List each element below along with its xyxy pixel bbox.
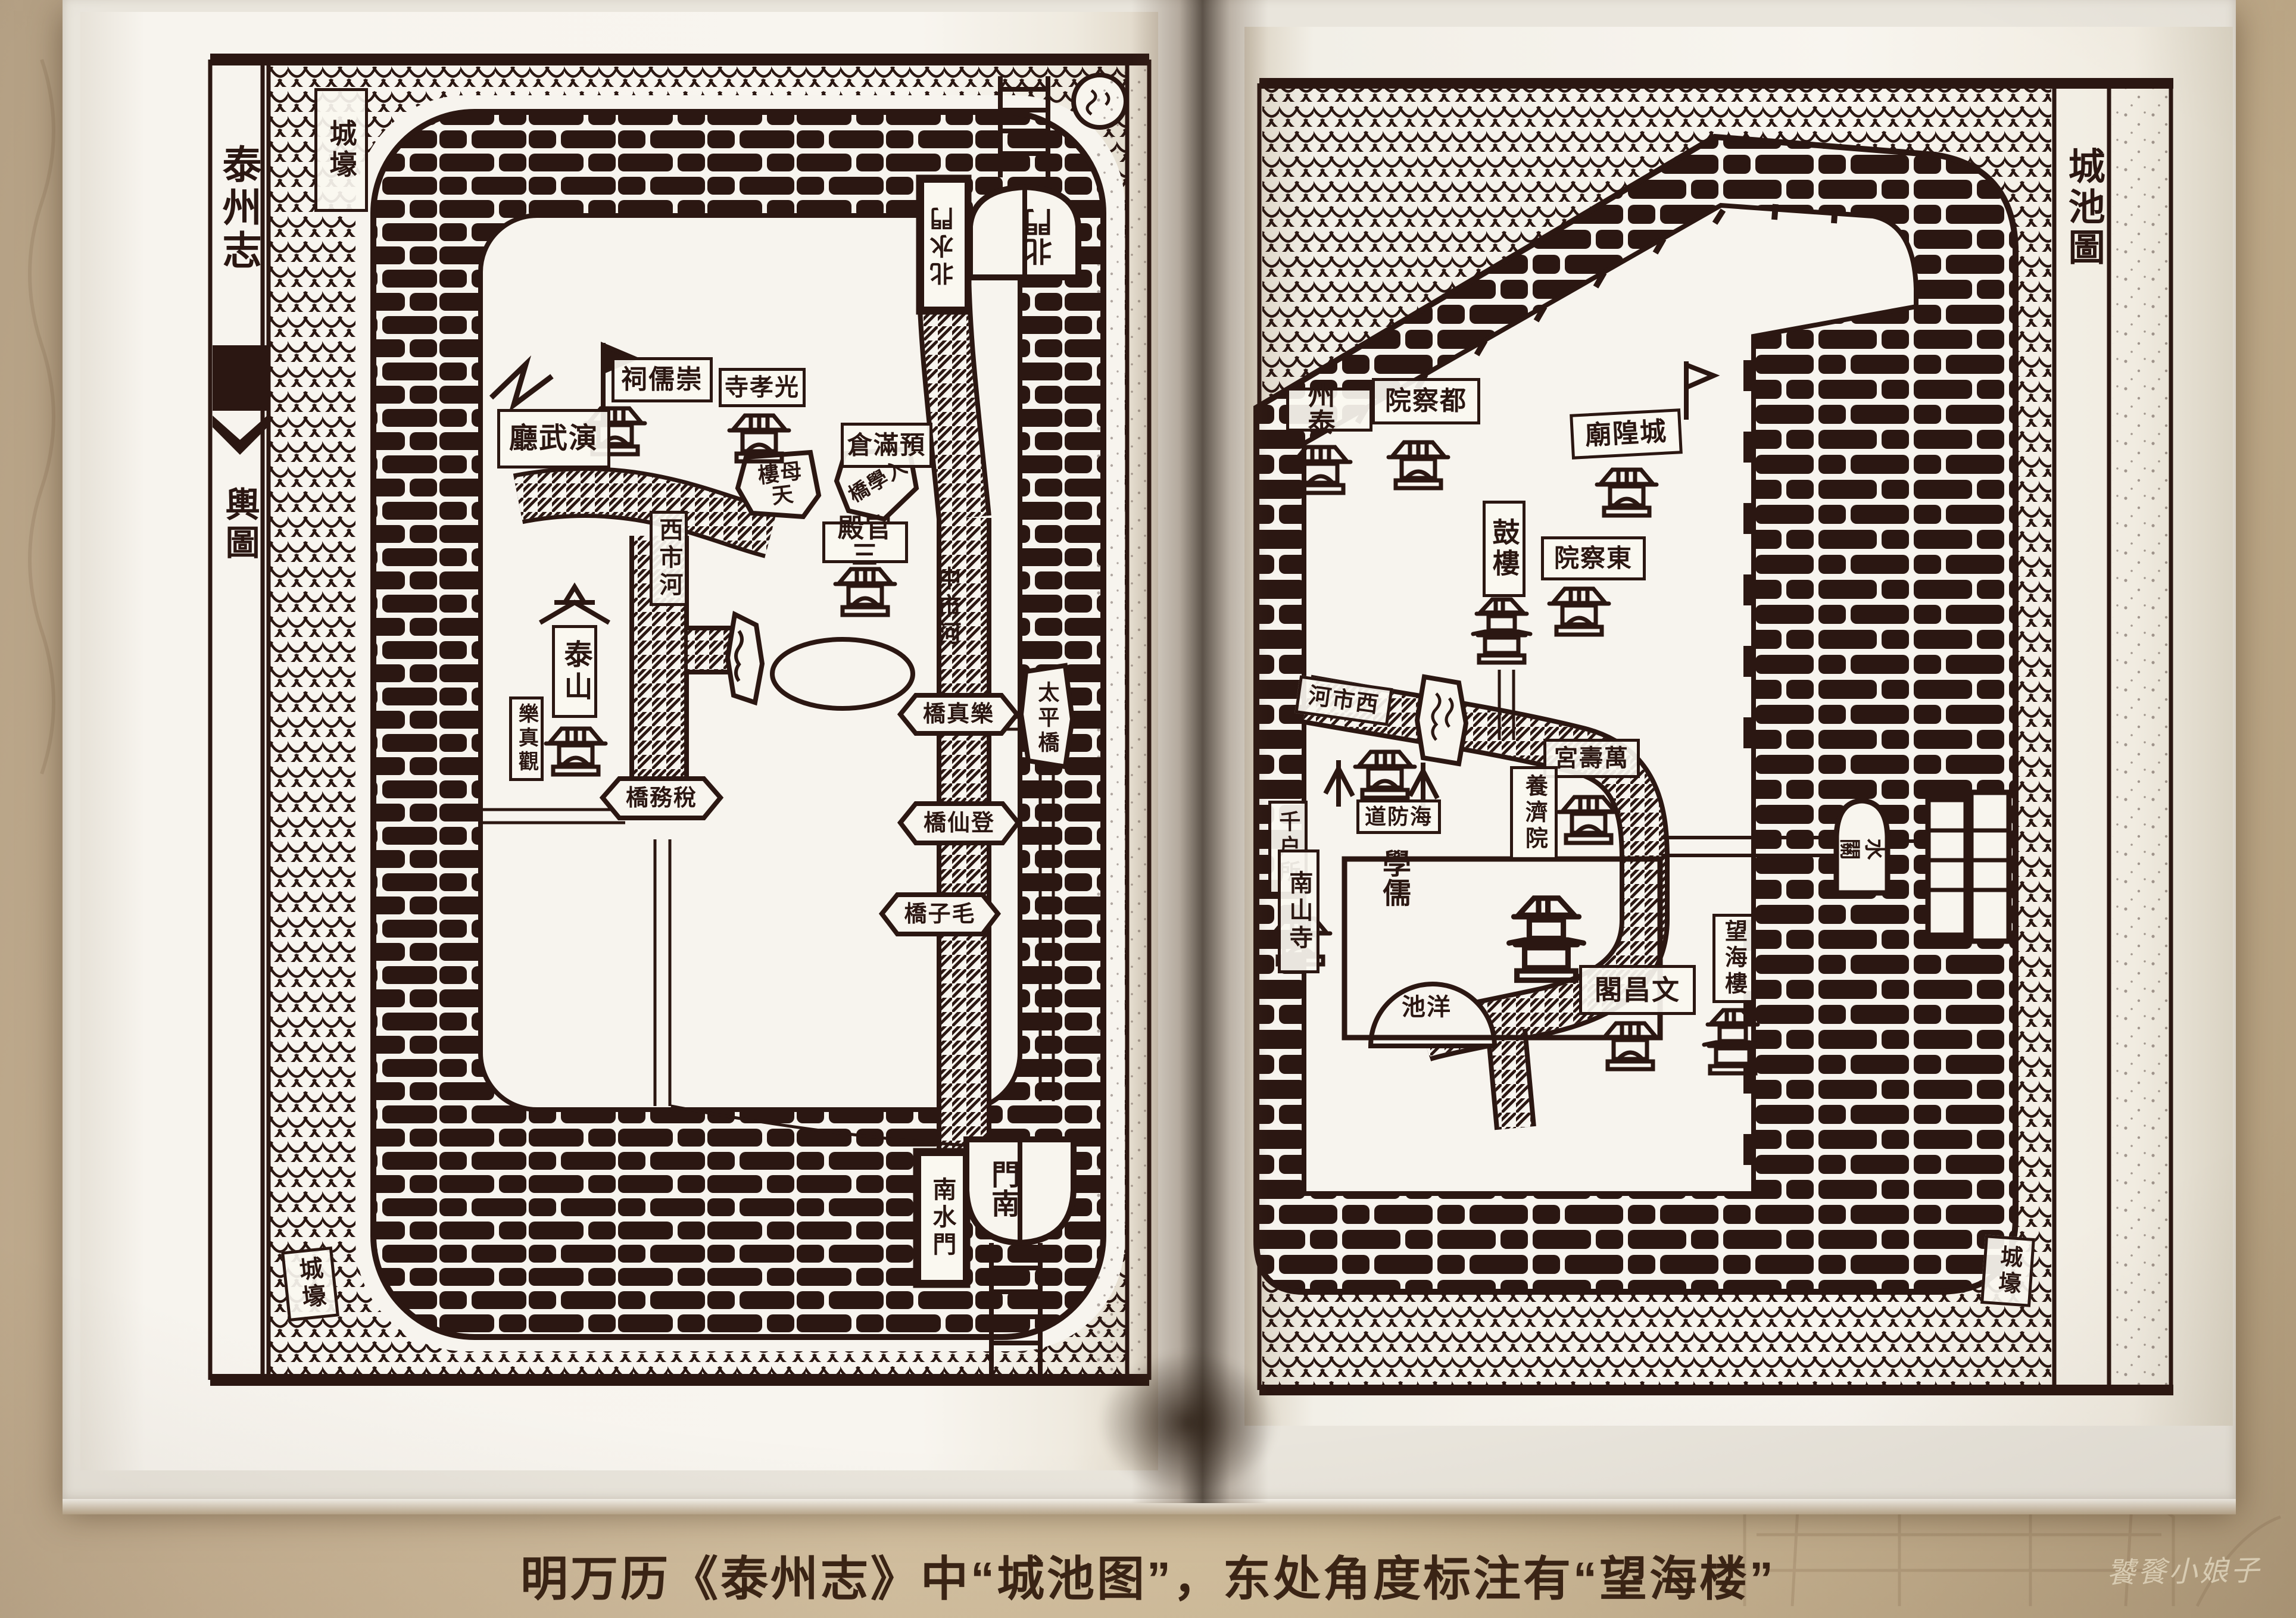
label-north-gate: 北門 [970, 208, 1078, 262]
label-nanshan-temple: 南山寺 [1278, 849, 1319, 973]
label-lezhen-bridge: 橋真樂 [915, 695, 1003, 733]
label-taishan: 泰山 [552, 625, 597, 718]
book-page-right: 城池圖 州泰 院察都 廟隍城 鼓樓 院察東 河市西 宮壽萬 養濟院 道防海 千户… [1244, 27, 2233, 1426]
book-page-left: 泰州志 輿圖 城壕 城壕 廳武演 祠儒崇 寺孝光 倉滿預 樓母天 橋學入 殿官三… [80, 12, 1158, 1470]
label-maozi-bridge: 橋子毛 [896, 895, 984, 934]
label-yanwu-hall: 廳武演 [497, 409, 610, 468]
map-title-right: 城池圖 [2057, 132, 2109, 284]
label-south-water-gate: 南水門 [918, 1153, 966, 1283]
label-east-censorate: 院察東 [1541, 536, 1646, 580]
label-moat-bottom: 城壕 [281, 1247, 339, 1322]
label-south-gate: 門南 [965, 1164, 1074, 1217]
label-middle-market-river: 中市河 [928, 563, 965, 651]
label-censorate: 院察都 [1372, 378, 1480, 424]
label-taiping-bridge: 太平橋 [1026, 670, 1068, 767]
label-yangji-almshouse: 養濟院 [1510, 766, 1558, 860]
label-dengxian-bridge: 橋仙登 [915, 804, 1004, 843]
museum-photo-scene: 泰州志 輿圖 城壕 城壕 廳武演 祠儒崇 寺孝光 倉滿預 樓母天 橋學入 殿官三… [0, 0, 2296, 1618]
label-yang-pond: 池洋 [1386, 989, 1467, 1026]
label-wanshou-palace: 宮壽萬 [1543, 739, 1640, 778]
label-water-gate: 水關 [1826, 828, 1897, 866]
label-coastal-defense: 道防海 [1356, 799, 1441, 834]
label-moat-top: 城壕 [314, 88, 368, 212]
panel-bottom-edge [63, 1499, 2236, 1514]
label-tianmu-tower: 樓母天 [747, 461, 818, 507]
label-confucian-school: 學儒 [1350, 861, 1479, 898]
label-drum-tower: 鼓樓 [1483, 501, 1526, 597]
label-wenchang-pavilion: 閣昌文 [1579, 965, 1696, 1015]
exhibit-caption: 明万历《泰州志》中“城池图”，东处角度标注有“望海楼” [0, 1541, 2296, 1610]
label-west-market-river: 西市河 [650, 511, 688, 606]
label-guangxiao-temple: 寺孝光 [719, 368, 806, 407]
label-shuiwu-bridge: 橋務稅 [618, 779, 705, 818]
label-sanguan-hall: 殿官三 [822, 521, 908, 563]
map-title-left: 輿圖 [214, 462, 265, 587]
label-city-god-temple: 廟隍城 [1570, 408, 1683, 460]
gutter-ink-smudge [1099, 1351, 1277, 1494]
label-north-water-gate: 北水門 [921, 180, 968, 310]
label-moat-right: 城壕 [1980, 1235, 2035, 1307]
book-title: 泰州志 [210, 68, 267, 348]
label-chongru-shrine: 祠儒崇 [612, 357, 713, 402]
label-wanghai-tower: 望海樓 [1712, 914, 1754, 1003]
label-lezhen-temple: 樂真觀 [509, 696, 544, 781]
photographer-watermark: 饕餮小娘子 [2106, 1546, 2291, 1591]
margin-black-bar [213, 345, 267, 411]
label-prefecture: 州泰 [1286, 388, 1372, 432]
